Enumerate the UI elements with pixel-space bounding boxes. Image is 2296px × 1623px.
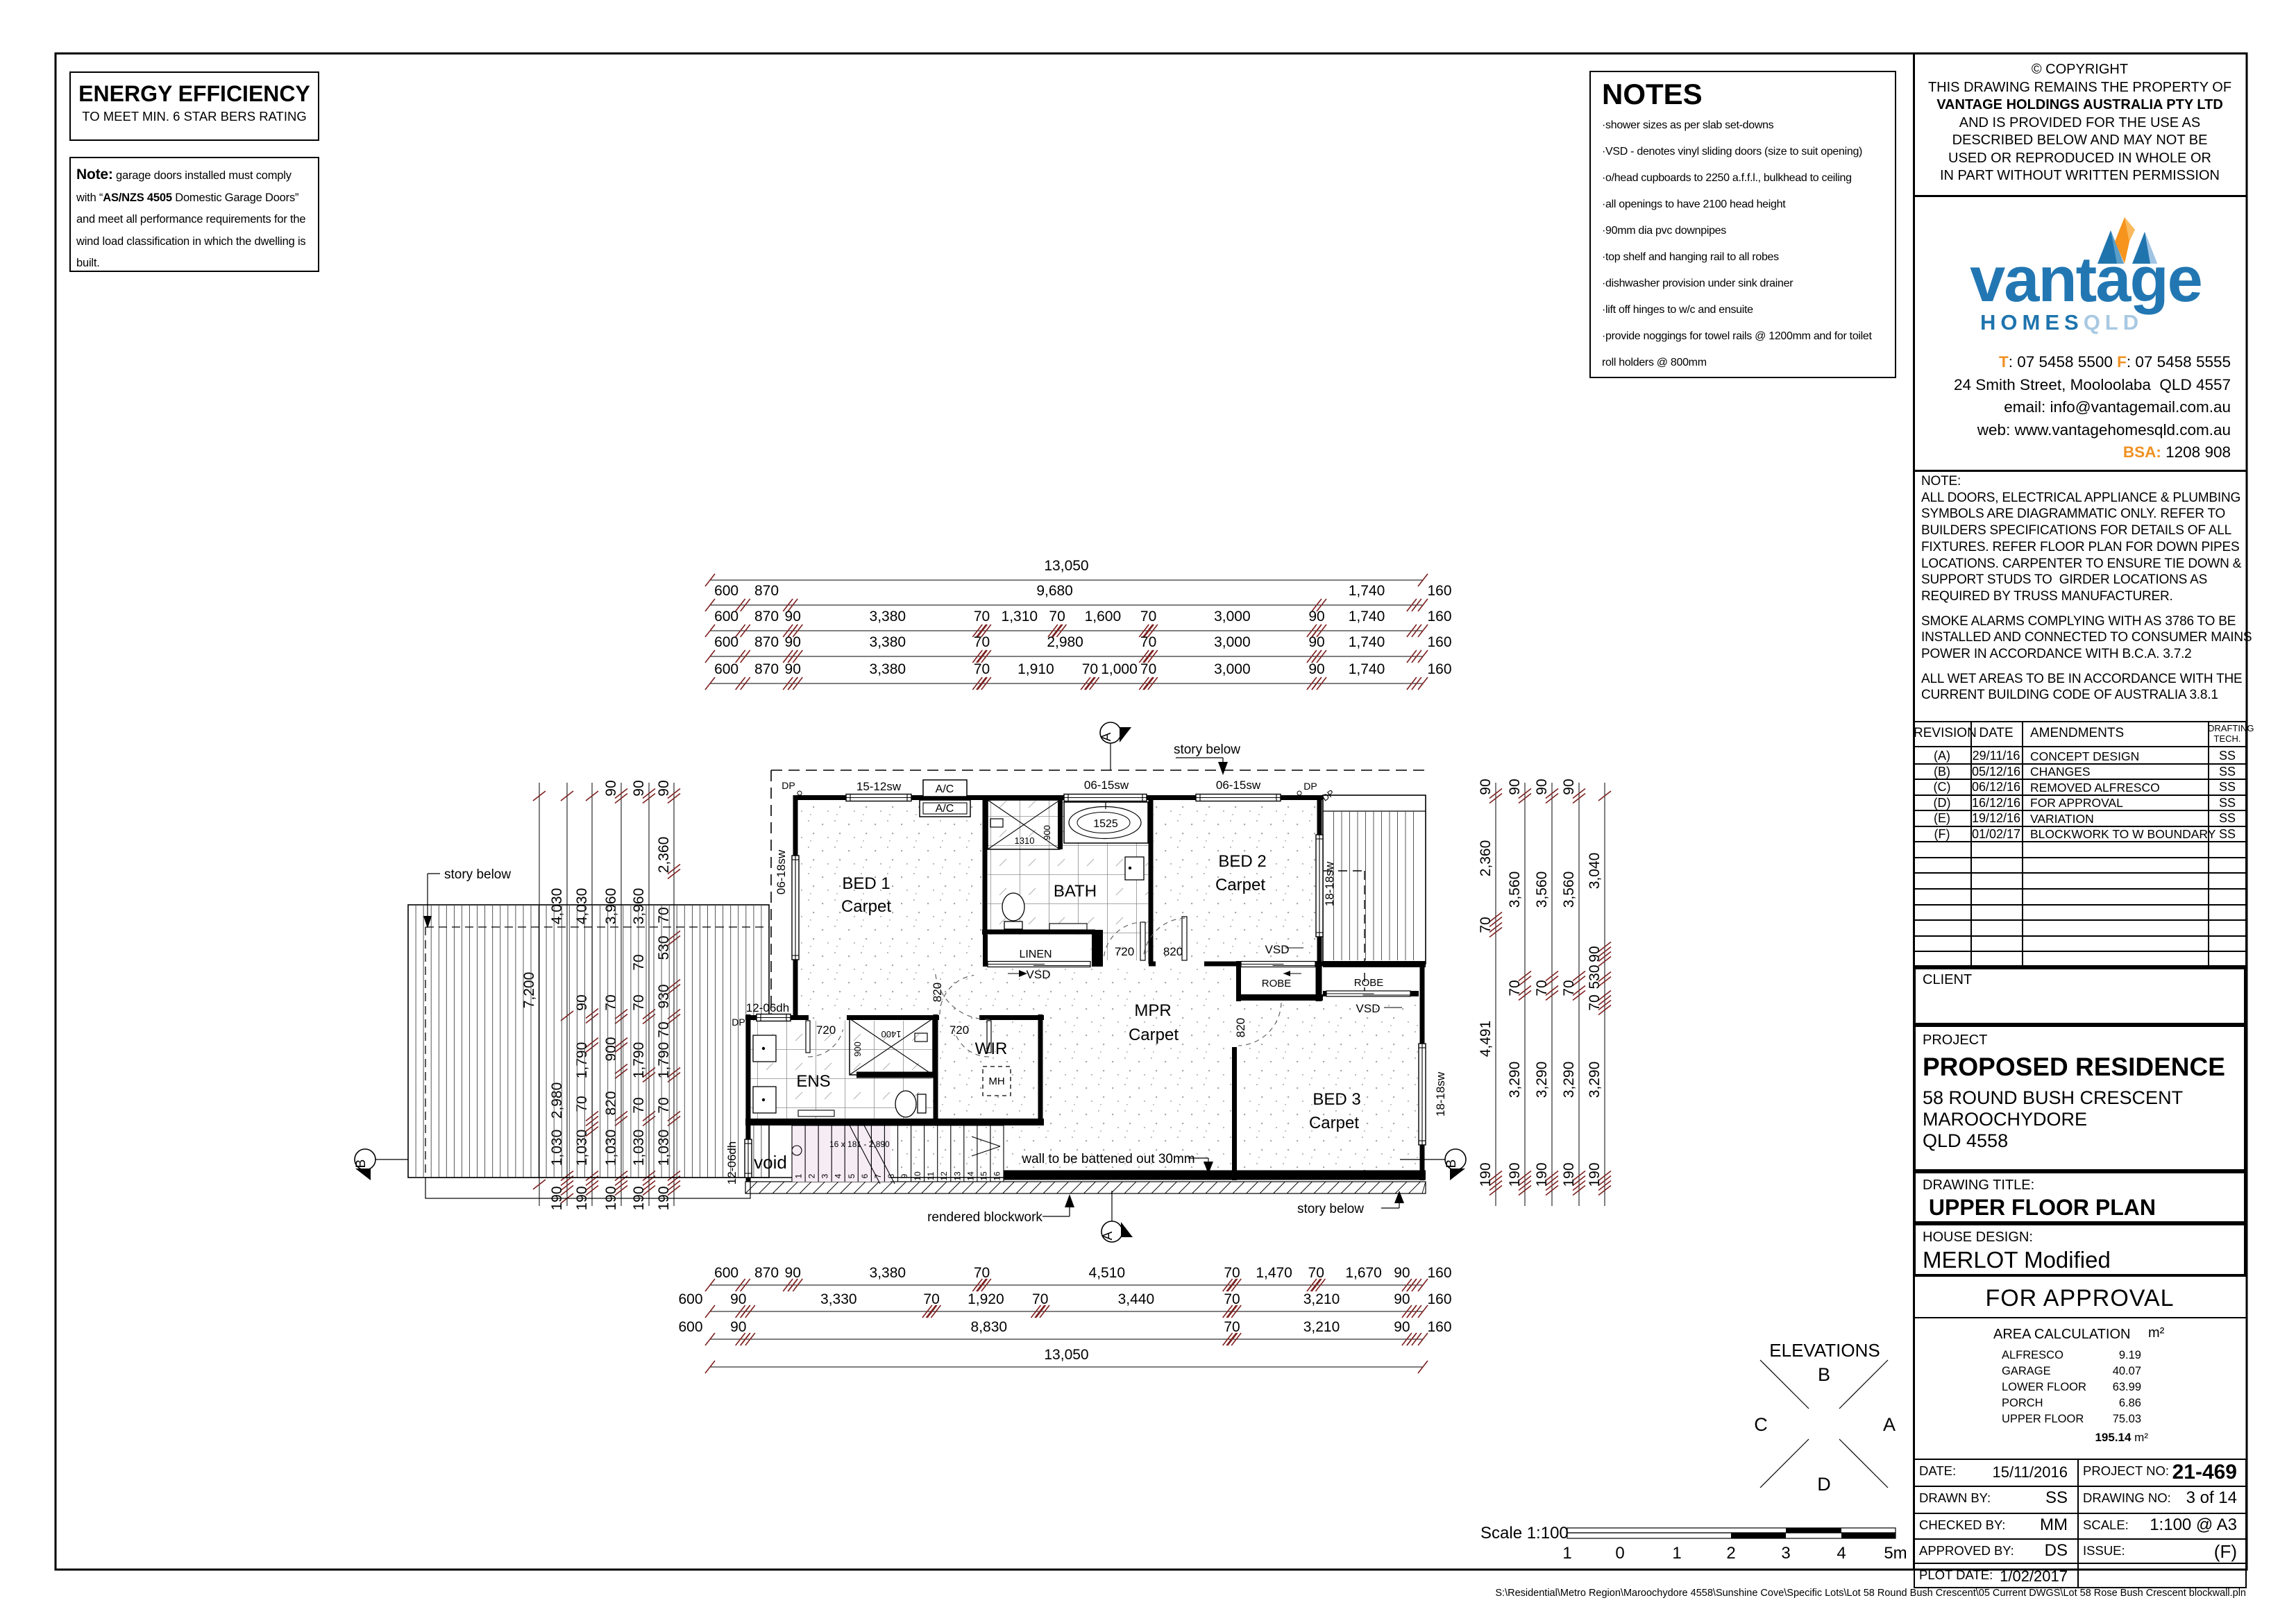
svg-text:3,560: 3,560 [1507,872,1523,908]
svg-text:190: 190 [1561,1162,1577,1187]
svg-text:1,600: 1,600 [1085,609,1122,624]
svg-text:3,290: 3,290 [1561,1062,1577,1098]
svg-text:720: 720 [816,1023,836,1037]
svg-text:3,960: 3,960 [603,888,619,925]
svg-text:70: 70 [974,1265,990,1281]
svg-text:1525: 1525 [1093,818,1118,830]
svg-text:70: 70 [1140,634,1156,650]
svg-text:720: 720 [1115,945,1134,958]
svg-text:3,000: 3,000 [1214,661,1251,677]
svg-text:1,670: 1,670 [1345,1265,1382,1281]
svg-text:70: 70 [1561,980,1577,996]
svg-text:90: 90 [1394,1265,1410,1281]
svg-text:void: void [754,1152,787,1173]
svg-text:A/C: A/C [936,803,954,815]
svg-text:rendered blockwork: rendered blockwork [927,1210,1043,1225]
svg-text:1,790: 1,790 [574,1042,590,1079]
svg-text:70: 70 [1224,1265,1240,1281]
svg-text:ROBE: ROBE [1354,977,1384,989]
svg-text:90: 90 [1308,609,1324,624]
svg-text:1,740: 1,740 [1349,661,1385,677]
svg-text:B: B [1444,1159,1459,1169]
svg-text:3,380: 3,380 [870,634,906,650]
svg-text:600: 600 [714,1265,738,1281]
svg-text:10: 10 [913,1171,922,1181]
svg-text:11: 11 [926,1171,936,1180]
svg-text:D: D [1817,1474,1831,1495]
svg-text:wall to be battened out 30mm: wall to be battened out 30mm [1021,1152,1195,1166]
svg-text:BED 3: BED 3 [1312,1090,1360,1109]
svg-text:1310: 1310 [1015,835,1035,846]
svg-text:160: 160 [1427,1265,1451,1281]
svg-text:A: A [1099,732,1114,741]
svg-text:820: 820 [1234,1018,1247,1037]
svg-text:7: 7 [873,1173,883,1178]
svg-text:1,740: 1,740 [1349,583,1385,599]
svg-text:820: 820 [1163,945,1183,958]
svg-text:1,030: 1,030 [603,1130,619,1166]
svg-text:2,360: 2,360 [1478,840,1494,877]
svg-text:4,491: 4,491 [1478,1021,1494,1057]
svg-text:190: 190 [1534,1162,1550,1187]
svg-text:70: 70 [974,634,990,650]
svg-text:900: 900 [603,1037,619,1061]
svg-text:720: 720 [949,1023,969,1037]
svg-text:LINEN: LINEN [1019,949,1052,960]
svg-text:70: 70 [1308,1265,1324,1281]
svg-text:2: 2 [807,1173,817,1178]
svg-text:90: 90 [1394,1291,1410,1307]
svg-text:DP: DP [782,780,795,791]
svg-text:DP: DP [732,1017,745,1028]
svg-text:1,030: 1,030 [549,1130,565,1166]
svg-text:ELEVATIONS: ELEVATIONS [1769,1340,1880,1361]
svg-text:90: 90 [785,1265,801,1281]
svg-text:90: 90 [1534,779,1550,794]
svg-text:story below: story below [444,867,511,882]
svg-text:70: 70 [923,1291,939,1307]
svg-text:VSD: VSD [1027,968,1051,981]
svg-text:4,030: 4,030 [549,888,565,925]
svg-text:18-18sw: 18-18sw [1323,861,1336,906]
svg-text:90: 90 [1561,779,1577,794]
svg-text:70: 70 [1534,980,1550,996]
svg-text:B: B [354,1159,369,1169]
svg-text:WIR: WIR [975,1039,1008,1058]
svg-text:2,980: 2,980 [1047,634,1083,650]
svg-text:3,040: 3,040 [1587,853,1603,890]
svg-text:3: 3 [1781,1544,1790,1563]
svg-text:1: 1 [1672,1544,1681,1563]
svg-text:870: 870 [754,1265,779,1281]
svg-text:ROBE: ROBE [1262,978,1292,989]
svg-text:1,790: 1,790 [631,1042,647,1079]
svg-text:160: 160 [1427,1291,1451,1307]
svg-text:90: 90 [1507,779,1523,794]
svg-text:90: 90 [631,780,647,796]
svg-text:70: 70 [1032,1291,1048,1307]
svg-text:1,030: 1,030 [631,1130,647,1166]
svg-text:MH: MH [988,1076,1004,1087]
svg-text:1400: 1400 [881,1029,902,1039]
svg-text:9,680: 9,680 [1036,583,1073,599]
svg-text:BED 1: BED 1 [842,874,890,893]
svg-text:3,000: 3,000 [1214,634,1251,650]
svg-text:90: 90 [730,1291,746,1307]
svg-text:600: 600 [714,609,738,624]
svg-text:6: 6 [860,1173,870,1178]
svg-text:9: 9 [900,1173,909,1178]
svg-text:A: A [1101,1231,1115,1240]
svg-text:4: 4 [834,1173,843,1178]
svg-text:870: 870 [754,583,779,599]
svg-text:90: 90 [730,1319,746,1335]
svg-text:70: 70 [1507,980,1523,996]
svg-text:A/C: A/C [936,783,954,795]
svg-text:90: 90 [1587,946,1603,962]
svg-text:70: 70 [574,1096,590,1112]
svg-text:90: 90 [603,780,619,796]
svg-text:70: 70 [1049,609,1065,624]
svg-text:190: 190 [1478,1162,1494,1187]
svg-text:160: 160 [1427,1319,1451,1335]
svg-text:Carpet: Carpet [841,897,891,916]
svg-text:2,980: 2,980 [549,1082,565,1119]
svg-text:3,000: 3,000 [1214,609,1251,624]
svg-text:90: 90 [1308,661,1324,677]
svg-text:Scale 1:100: Scale 1:100 [1480,1524,1569,1543]
svg-text:3: 3 [820,1173,830,1178]
svg-text:160: 160 [1427,583,1451,599]
svg-text:900: 900 [1042,825,1052,840]
svg-text:820: 820 [931,983,944,1002]
svg-text:70: 70 [1082,661,1098,677]
svg-text:3,380: 3,380 [870,661,906,677]
svg-text:1,310: 1,310 [1002,609,1038,624]
svg-text:ENS: ENS [796,1072,830,1091]
svg-text:15-12sw: 15-12sw [856,780,902,793]
svg-text:story below: story below [1297,1202,1364,1216]
svg-text:600: 600 [714,583,738,599]
svg-text:BATH: BATH [1054,882,1097,901]
svg-text:70: 70 [1140,609,1156,624]
svg-text:18-18sw: 18-18sw [1434,1071,1447,1116]
svg-text:70: 70 [603,994,619,1010]
svg-text:3,380: 3,380 [870,609,906,624]
svg-text:190: 190 [1507,1162,1523,1187]
svg-text:160: 160 [1427,661,1451,677]
svg-text:70: 70 [631,1097,647,1113]
svg-text:3,210: 3,210 [1303,1319,1340,1335]
svg-text:12: 12 [939,1171,949,1181]
svg-text:5: 5 [847,1173,856,1178]
svg-text:1: 1 [794,1173,804,1178]
svg-text:DP: DP [1303,781,1317,792]
svg-text:90: 90 [1478,779,1494,794]
svg-text:13,050: 13,050 [1044,558,1088,574]
svg-text:12-06dh: 12-06dh [746,1001,789,1014]
svg-text:190: 190 [1587,1162,1603,1187]
svg-text:story below: story below [1174,742,1240,757]
svg-text:5m: 5m [1884,1544,1907,1563]
svg-text:90: 90 [1308,634,1324,650]
svg-text:70: 70 [631,994,647,1010]
svg-text:06-15sw: 06-15sw [1216,779,1261,792]
svg-text:70: 70 [1224,1291,1240,1307]
svg-text:3,560: 3,560 [1561,872,1577,908]
svg-text:06-18sw: 06-18sw [775,849,788,894]
svg-text:A: A [1883,1414,1896,1435]
svg-text:3,290: 3,290 [1534,1062,1550,1098]
svg-text:VSD: VSD [1356,1002,1381,1015]
svg-text:2: 2 [1726,1544,1735,1563]
svg-text:3,560: 3,560 [1534,872,1550,908]
svg-text:70: 70 [1587,994,1603,1010]
svg-text:70: 70 [974,609,990,624]
svg-text:90: 90 [785,609,801,624]
svg-text:870: 870 [754,661,779,677]
svg-text:1,920: 1,920 [968,1291,1004,1307]
svg-text:3,960: 3,960 [631,888,647,925]
svg-text:C: C [1754,1414,1768,1435]
svg-text:2,360: 2,360 [656,837,672,874]
svg-text:BED 2: BED 2 [1218,852,1266,871]
svg-text:70: 70 [1140,661,1156,677]
svg-text:90: 90 [1394,1319,1410,1335]
svg-text:820: 820 [603,1091,619,1115]
svg-text:4,030: 4,030 [574,888,590,925]
svg-text:870: 870 [754,634,779,650]
svg-text:0: 0 [1615,1544,1624,1563]
svg-text:3,380: 3,380 [870,1265,906,1281]
svg-text:Carpet: Carpet [1215,876,1265,894]
svg-text:70: 70 [631,954,647,970]
svg-text:70: 70 [1224,1319,1240,1335]
svg-text:4: 4 [1837,1544,1846,1563]
svg-text:160: 160 [1427,634,1451,650]
svg-text:15: 15 [979,1171,988,1181]
svg-text:B: B [1818,1364,1830,1385]
svg-text:90: 90 [785,661,801,677]
svg-text:870: 870 [754,609,779,624]
svg-text:600: 600 [678,1291,702,1307]
svg-text:1,470: 1,470 [1256,1265,1292,1281]
svg-text:3,440: 3,440 [1118,1291,1155,1307]
svg-text:VSD: VSD [1265,943,1290,956]
svg-text:900: 900 [852,1042,863,1057]
svg-text:1,000: 1,000 [1101,661,1138,677]
svg-text:16: 16 [993,1171,1002,1181]
svg-text:530: 530 [1587,965,1603,989]
svg-text:Carpet: Carpet [1129,1026,1179,1044]
svg-text:90: 90 [656,780,672,796]
svg-text:13,050: 13,050 [1044,1347,1088,1363]
svg-text:1,910: 1,910 [1018,661,1054,677]
svg-text:600: 600 [714,634,738,650]
svg-text:90: 90 [785,634,801,650]
svg-text:12-06dh: 12-06dh [725,1141,738,1184]
svg-text:1: 1 [1562,1544,1571,1563]
svg-text:70: 70 [1478,917,1494,933]
svg-text:90: 90 [574,994,590,1010]
svg-text:3,290: 3,290 [1507,1062,1523,1098]
svg-text:MPR: MPR [1134,1001,1171,1020]
svg-text:1,740: 1,740 [1349,609,1385,624]
svg-text:06-15sw: 06-15sw [1084,779,1129,792]
svg-text:4,510: 4,510 [1089,1265,1126,1281]
svg-text:1,030: 1,030 [574,1130,590,1166]
svg-text:3,330: 3,330 [820,1291,857,1307]
svg-text:3,210: 3,210 [1303,1291,1340,1307]
svg-text:600: 600 [678,1319,702,1335]
svg-text:1,740: 1,740 [1349,634,1385,650]
svg-text:13: 13 [952,1171,962,1181]
svg-text:600: 600 [714,661,738,677]
svg-text:8,830: 8,830 [971,1319,1008,1335]
svg-text:70: 70 [974,661,990,677]
svg-text:160: 160 [1427,609,1451,624]
svg-text:16 x 181 - 2,890: 16 x 181 - 2,890 [829,1139,890,1149]
svg-text:14: 14 [965,1171,975,1181]
svg-text:Carpet: Carpet [1309,1114,1359,1132]
svg-text:3,290: 3,290 [1587,1062,1603,1098]
